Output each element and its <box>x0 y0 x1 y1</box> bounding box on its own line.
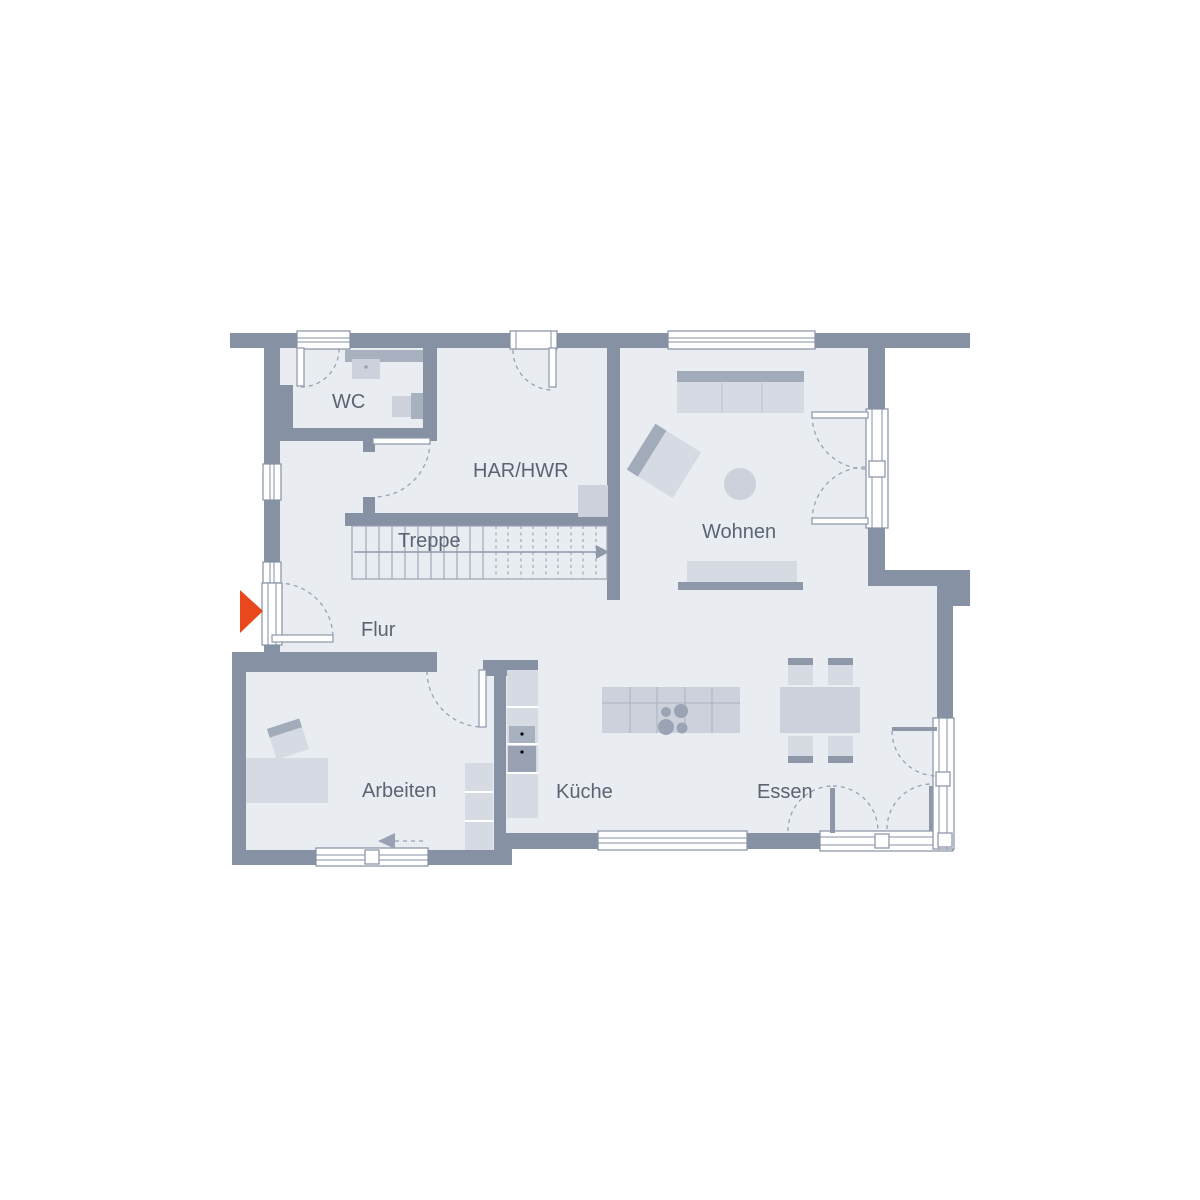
wohnen-door-leaf-bottom <box>812 518 868 524</box>
dining-chair <box>828 658 853 685</box>
wall-stair-top <box>345 513 613 526</box>
room-label-har-hwr: HAR/HWR <box>473 460 569 482</box>
washbasin <box>352 359 380 379</box>
wall-wc-west <box>280 385 293 441</box>
kitchen-island <box>602 687 740 735</box>
wall-har-stub-bottom <box>363 497 375 515</box>
door-handle <box>869 461 885 477</box>
room-label-wohnen: Wohnen <box>702 521 776 543</box>
entrance-door-leaf <box>272 635 333 642</box>
wall-stub-right-return <box>953 586 970 606</box>
floor-plan-page: WC HAR/HWR Treppe Flur Wohnen Arbeiten K… <box>0 0 1200 1200</box>
sofa-back <box>677 371 804 382</box>
toilet-cistern <box>411 393 423 419</box>
window-wc-top <box>297 331 350 349</box>
corner-door-leaf-3 <box>892 727 937 731</box>
desk <box>246 758 328 803</box>
window-kueche-bottom <box>598 831 747 850</box>
wall-flur-arbeiten <box>232 652 437 672</box>
wall-kueche-arbeiten <box>494 660 506 850</box>
room-label-kueche: Küche <box>556 781 613 803</box>
wall-essen-right <box>937 586 953 718</box>
dining-chair <box>788 658 813 685</box>
har-door-leaf <box>373 438 430 444</box>
wohnen-door-leaf-top <box>812 412 868 418</box>
dining-chair <box>788 736 813 763</box>
dining-chair <box>828 736 853 763</box>
corner-post <box>938 833 952 847</box>
room-label-wc: WC <box>332 391 365 413</box>
shelf <box>465 763 493 850</box>
door-handle <box>875 834 889 848</box>
wall-har-wohnen <box>607 348 620 600</box>
washing-machine <box>578 485 608 517</box>
toilet <box>392 396 412 417</box>
door-handle <box>936 772 950 786</box>
wc-door-leaf <box>297 348 304 386</box>
arbeiten-door-leaf <box>479 670 486 727</box>
oven <box>508 746 536 772</box>
corner-door-leaf-2 <box>929 786 933 831</box>
window-handle <box>365 850 379 864</box>
coffee-table <box>724 468 756 500</box>
window-arbeiten-bottom <box>316 848 428 866</box>
dining-table <box>780 687 860 733</box>
window-flur-left-upper <box>263 464 281 500</box>
wall-stub-right <box>868 570 970 586</box>
room-label-flur: Flur <box>361 619 396 641</box>
window-wohnen-top <box>668 331 815 349</box>
tv-bar <box>678 582 803 590</box>
room-label-treppe: Treppe <box>398 530 461 552</box>
lowboard <box>687 561 797 582</box>
faucet-dot <box>364 365 368 369</box>
corner-door-leaf-1 <box>830 788 835 833</box>
floor-plan-drawing: WC HAR/HWR Treppe Flur Wohnen Arbeiten K… <box>0 0 1200 1200</box>
room-label-essen: Essen <box>757 781 813 803</box>
staircase <box>352 526 609 579</box>
wall-arbeiten-left <box>232 652 246 865</box>
window-flur-left-lower <box>263 562 281 583</box>
entrance-arrow <box>240 590 263 633</box>
room-label-arbeiten: Arbeiten <box>362 780 437 802</box>
wall-wc-right <box>423 348 437 441</box>
har-top-door-leaf <box>549 348 556 387</box>
